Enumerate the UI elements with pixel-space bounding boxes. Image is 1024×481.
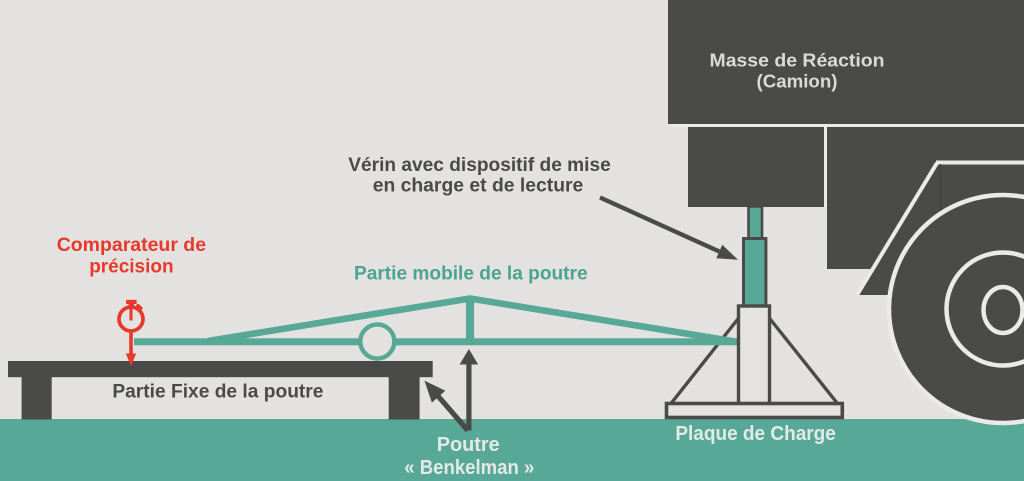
svg-text:en charge et de lecture: en charge et de lecture — [373, 175, 584, 197]
svg-text:Poutre: Poutre — [437, 434, 500, 456]
svg-text:Plaque de Charge: Plaque de Charge — [675, 423, 836, 445]
svg-text:Vérin avec dispositif de mise: Vérin avec dispositif de mise — [348, 154, 611, 176]
svg-text:précision: précision — [89, 255, 173, 277]
svg-text:Masse de Réaction: Masse de Réaction — [710, 50, 885, 70]
svg-text:« Benkelman »: « Benkelman » — [404, 457, 534, 479]
svg-text:Comparateur de: Comparateur de — [57, 234, 206, 256]
svg-text:(Camion): (Camion) — [757, 72, 838, 92]
svg-text:Partie Fixe de la poutre: Partie Fixe de la poutre — [112, 381, 323, 403]
svg-text:Partie mobile de la poutre: Partie mobile de la poutre — [354, 263, 588, 285]
